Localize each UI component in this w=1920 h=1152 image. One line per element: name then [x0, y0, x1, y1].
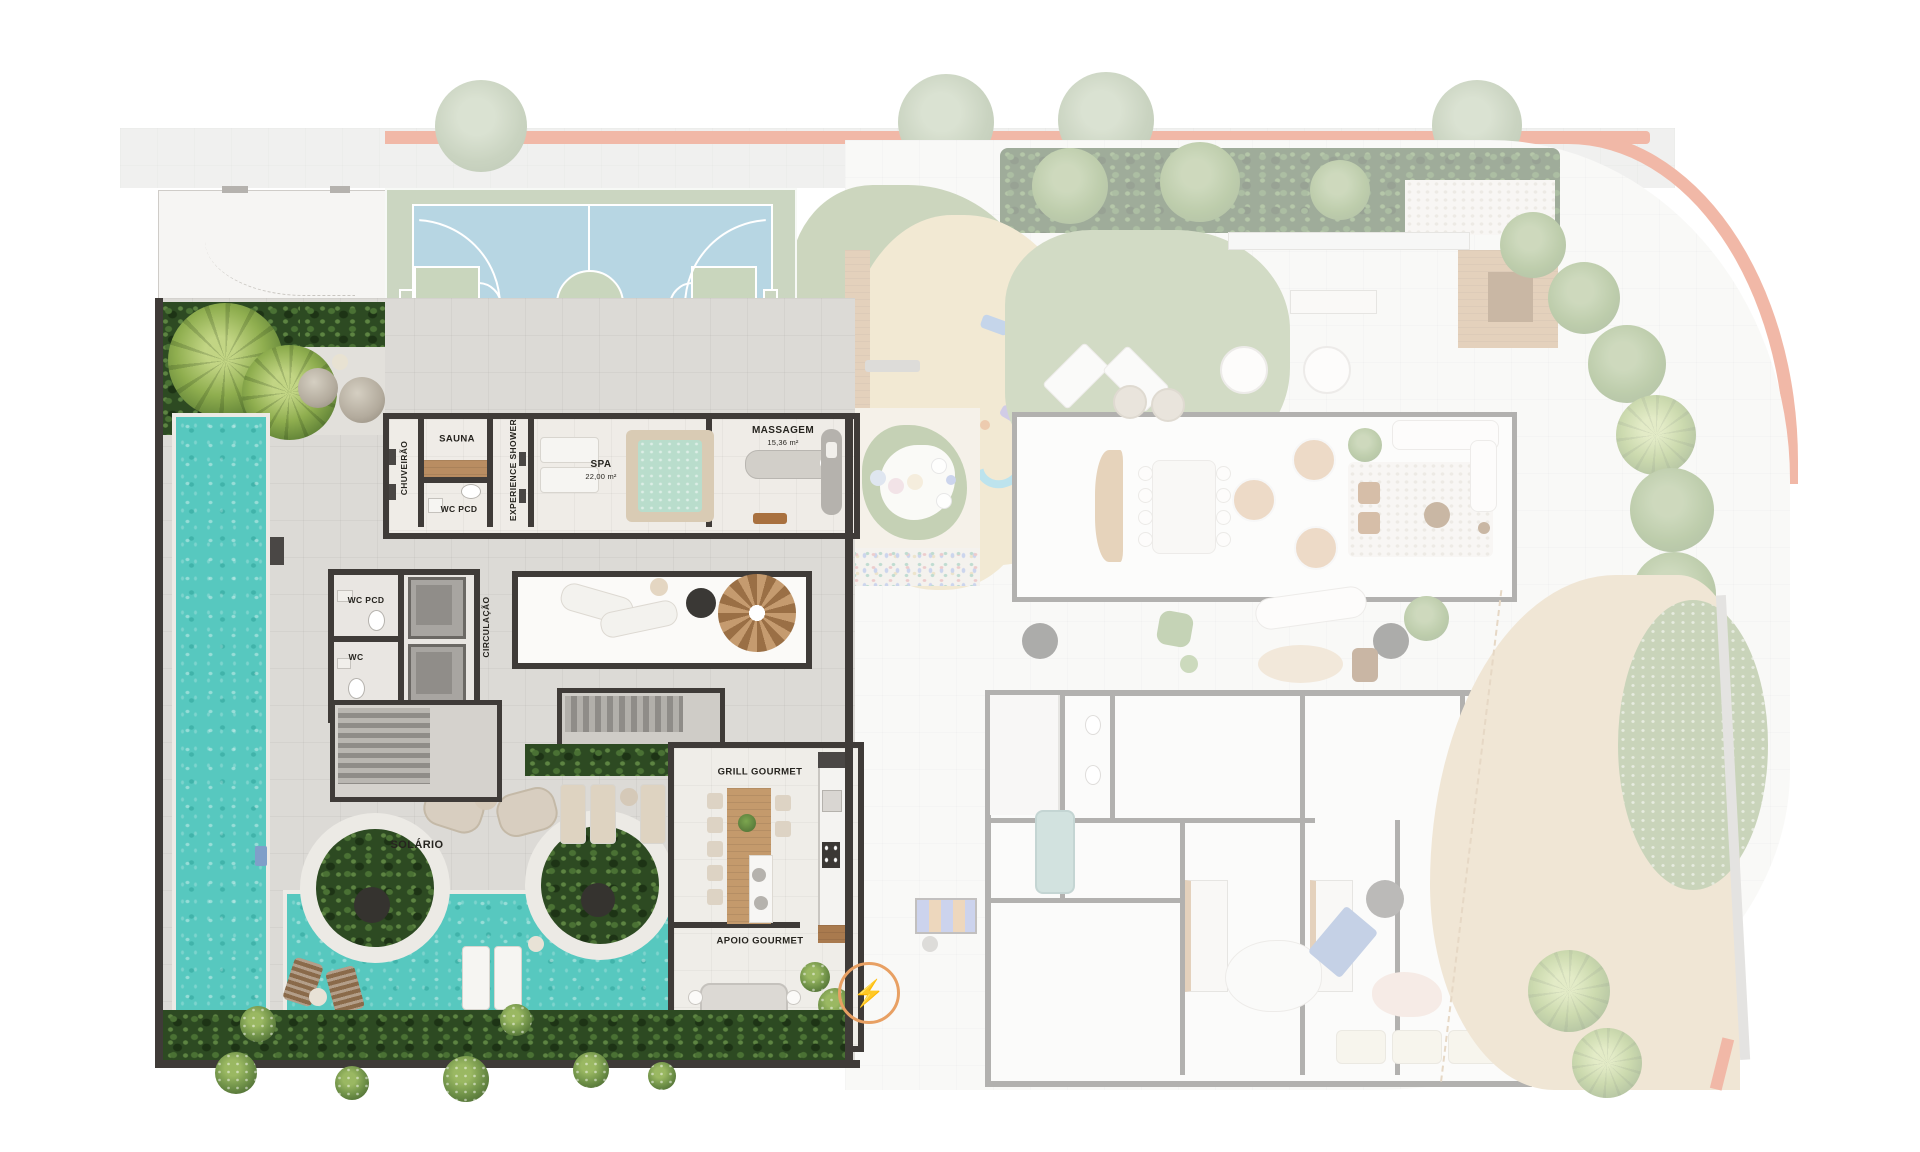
rattan-pouf	[1113, 385, 1147, 419]
flowering-bush	[648, 1062, 676, 1090]
wc-text: WC	[349, 652, 364, 662]
grill-stool	[707, 841, 723, 857]
room-label-wc-pcd: WC PCD	[348, 595, 385, 605]
garden-tree	[1310, 160, 1370, 220]
apoio-gourmet-text: APOIO GOURMET	[716, 936, 803, 947]
terrace-pouf-dark	[1022, 623, 1058, 659]
hall-pouf	[1358, 512, 1380, 534]
room-label-wc: WC	[349, 652, 364, 662]
apartment-wall	[1110, 690, 1115, 820]
sun-lounger	[560, 784, 586, 844]
sun-lounger	[590, 784, 616, 844]
grill-table-counter	[749, 855, 773, 923]
grill-stool	[775, 795, 791, 811]
street-tree	[435, 80, 527, 172]
hall-chair	[1216, 510, 1231, 525]
sand-palm	[1528, 950, 1610, 1032]
rattan-pouf	[1151, 388, 1185, 422]
lounge-pouf	[650, 578, 668, 596]
cabinet-tray	[826, 442, 837, 458]
toilet	[461, 484, 481, 499]
deck-table	[620, 788, 638, 806]
room-label-circulacao: CIRCULAÇÃO	[481, 596, 491, 657]
lounge-table-dark	[686, 588, 716, 618]
room-label-wc-pcd-sauna: WC PCD	[441, 504, 478, 514]
kitchen-counter	[1228, 232, 1470, 250]
kids-pouf	[888, 478, 904, 494]
pool-ladder	[255, 846, 267, 866]
massagem-area-text: 15,36 m²	[752, 438, 814, 447]
experience-shower-text: EXPERIENCE SHOWER	[508, 419, 518, 521]
terrace-chair-wood	[1352, 648, 1378, 682]
room-label-experience-shower: EXPERIENCE SHOWER	[508, 419, 518, 521]
toilet	[1085, 765, 1101, 785]
garden-tree	[1160, 142, 1240, 222]
grill-kitchen-counter	[818, 752, 848, 925]
grill-sink	[822, 790, 842, 812]
bed	[1185, 880, 1228, 992]
room-label-sauna: SAUNA	[439, 434, 475, 445]
terrace-door-stub	[330, 186, 350, 193]
wall	[487, 413, 493, 527]
boundary-wall-bottom	[155, 1060, 860, 1068]
wet-deck-table	[309, 988, 327, 1006]
hall-plant	[1348, 428, 1382, 462]
terrace-tree	[1404, 596, 1449, 641]
room-label-spa: SPA22,00 m²	[585, 459, 616, 481]
organic-sofa	[1225, 940, 1322, 1012]
hall-long-table	[1152, 460, 1216, 554]
circulacao-text: CIRCULAÇÃO	[481, 596, 491, 657]
in-pool-lounger	[494, 946, 522, 1010]
energy-bolt-glyph: ⚡	[853, 980, 885, 1006]
flowering-bush	[443, 1056, 489, 1102]
flowering-bush	[335, 1066, 369, 1100]
kids-chair	[946, 475, 956, 485]
perimeter-shrub	[1588, 325, 1666, 403]
planter-tree-dark	[354, 887, 390, 923]
apoio-chair	[688, 990, 703, 1005]
spa-text: SPA	[590, 459, 611, 470]
shower-fixture	[519, 489, 526, 503]
kids-chair	[936, 493, 952, 509]
in-pool-table	[528, 936, 544, 952]
terrace-table	[1303, 346, 1351, 394]
playground-bench	[865, 360, 920, 372]
sauna-text: SAUNA	[439, 434, 475, 445]
spa-area-text: 22,00 m²	[585, 472, 616, 481]
stepping-pad	[332, 354, 348, 370]
massagem-text: MASSAGEM	[752, 425, 814, 436]
terrace-door-stub	[222, 186, 248, 193]
grill-cooktop	[822, 842, 840, 868]
grill-fridge	[818, 752, 846, 768]
boulder	[339, 377, 385, 423]
sun-lounger	[640, 784, 666, 844]
table-bowl	[754, 896, 768, 910]
apartment-wall	[1300, 690, 1305, 1075]
terrace-rug	[1258, 645, 1343, 683]
kitchen-island	[1290, 290, 1377, 314]
spa-tub-water	[638, 440, 702, 512]
perimeter-shrub	[1548, 262, 1620, 334]
apartment-wall	[985, 898, 1185, 903]
pale-lounger	[1336, 1030, 1386, 1064]
flowering-bush	[215, 1052, 257, 1094]
grill-stool	[775, 821, 791, 837]
kids-pouf	[907, 474, 923, 490]
pink-rug	[1372, 972, 1442, 1017]
terrace-pouf-green	[1180, 655, 1198, 673]
hall-bar-counter	[1095, 450, 1123, 562]
wall	[334, 636, 404, 642]
shower-fixture	[519, 452, 526, 466]
garden-tree	[1032, 148, 1108, 224]
apoio-plant	[800, 962, 830, 992]
hedge-strip	[300, 302, 385, 347]
energy-cycle-icon: ⚡	[838, 962, 900, 1024]
table-plant	[738, 814, 756, 832]
apoio-chair	[786, 990, 801, 1005]
room-label-apoio-gourmet: APOIO GOURMET	[716, 936, 803, 947]
room-label-solario: SOLÁRIO	[391, 839, 444, 851]
grill-wood-shelf	[818, 925, 846, 943]
hall-side-table	[1424, 502, 1450, 528]
elevator-2-cab	[416, 652, 452, 694]
hall-sofa	[1470, 440, 1497, 512]
hall-chair	[1216, 532, 1231, 547]
hall-side-table	[1478, 522, 1490, 534]
stairs-main-treads	[338, 708, 430, 784]
wc-pcd-sauna-text: WC PCD	[441, 504, 478, 514]
floor-plan-canvas: SOLÁRIO CHUVEIRÃO SAUNA WC PCD EXPERIENC…	[0, 0, 1920, 1152]
room-label-grill-gourmet: GRILL GOURMET	[718, 767, 803, 778]
hall-chair	[1138, 466, 1153, 481]
kids-confetti-rug	[848, 548, 980, 586]
sand-palm	[1572, 1028, 1642, 1098]
shower-fixture	[389, 449, 396, 465]
shower-fixture	[389, 484, 396, 500]
stepping-dot	[980, 420, 990, 430]
flowering-bush	[573, 1052, 609, 1088]
kids-pouf	[870, 470, 886, 486]
terrace-pouf-dark	[1373, 623, 1409, 659]
perimeter-palm	[1616, 395, 1696, 475]
perimeter-shrub	[1500, 212, 1566, 278]
table-bowl	[752, 868, 766, 882]
hall-round-table	[1292, 438, 1336, 482]
terrace-table	[1220, 346, 1268, 394]
chuveirao-text: CHUVEIRÃO	[399, 441, 409, 496]
hall-chair	[1138, 488, 1153, 503]
boulder	[298, 368, 338, 408]
wood-terrace-table	[1488, 272, 1533, 322]
hall-pouf	[1358, 482, 1380, 504]
grill-gourmet-text: GRILL GOURMET	[718, 767, 803, 778]
wall	[528, 413, 534, 527]
perimeter-shrub	[1630, 468, 1714, 552]
hall-round-table	[1232, 478, 1276, 522]
apartment-counter	[990, 695, 1060, 815]
toilet	[368, 610, 385, 631]
round-table-dark	[1366, 880, 1404, 918]
sauna-bench	[424, 460, 487, 477]
wood-tray	[753, 513, 787, 524]
office-chair	[922, 936, 938, 952]
boundary-wall-left	[155, 298, 163, 1068]
room-label-chuveirao: CHUVEIRÃO	[399, 441, 409, 496]
hall-round-table	[1294, 526, 1338, 570]
elevator-1-cab	[416, 585, 452, 625]
wc-pcd-text: WC PCD	[348, 595, 385, 605]
in-pool-lounger	[462, 946, 490, 1010]
hall-chair	[1216, 466, 1231, 481]
grill-stool	[707, 793, 723, 809]
grill-stool	[707, 865, 723, 881]
flowering-bush	[240, 1006, 276, 1042]
deck-box	[270, 537, 284, 565]
terrace-armchair-green	[1155, 609, 1194, 648]
spiral-staircase	[718, 574, 796, 652]
locker-bench	[915, 898, 977, 934]
toilet	[1085, 715, 1101, 735]
hall-chair	[1216, 488, 1231, 503]
grill-stool	[707, 889, 723, 905]
stairs-straight-treads	[565, 696, 683, 732]
sand-green-mound	[1618, 600, 1768, 890]
solario-text: SOLÁRIO	[391, 839, 444, 851]
dining-table-teal	[1035, 810, 1075, 894]
room-label-massagem: MASSAGEM15,36 m²	[752, 425, 814, 447]
hall-chair	[1138, 532, 1153, 547]
grill-stool	[707, 817, 723, 833]
kids-chair	[931, 458, 947, 474]
planter-tree-dark	[581, 883, 615, 917]
toilet	[348, 678, 365, 699]
lap-pool	[172, 413, 270, 1021]
hall-chair	[1138, 510, 1153, 525]
flowering-bush	[500, 1004, 532, 1036]
pale-lounger	[1392, 1030, 1442, 1064]
wall	[424, 477, 487, 483]
